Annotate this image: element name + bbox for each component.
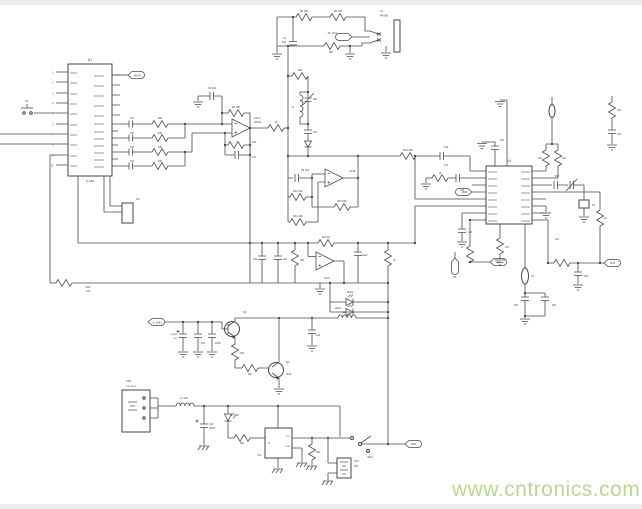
- rf-ic-u4: [415, 100, 549, 324]
- battery-cn3: [337, 458, 351, 478]
- component-label: S1: [25, 99, 29, 103]
- component-label: 1: [52, 72, 54, 75]
- component-label: 473: [444, 164, 449, 167]
- component-label: C9 104: [301, 169, 310, 172]
- filter-stage: [50, 240, 415, 445]
- component-label: 100uF: [209, 428, 216, 430]
- component-label: 16V: [173, 338, 177, 340]
- schematic-page: U1P-049MUTES1NC12345678910R2210310410410…: [0, 0, 642, 509]
- component-label: 10K: [316, 451, 321, 454]
- component-label: 1K: [439, 172, 442, 175]
- cn1-module: [122, 390, 340, 450]
- led1: [346, 295, 353, 306]
- component-label: OSC MOD: [126, 386, 137, 388]
- component-label: 560: [248, 373, 253, 376]
- component-label: LM324: [254, 122, 262, 124]
- component-label: 103: [86, 290, 91, 293]
- component-label: NC: [136, 197, 140, 201]
- component-label: 104: [617, 133, 622, 136]
- component-label: U2:A: [254, 116, 260, 120]
- component-label: 10K: [538, 157, 543, 160]
- component-label: R18 10K: [403, 149, 413, 152]
- component-label: 103: [283, 258, 288, 261]
- component-label: 104: [253, 258, 258, 261]
- component-label: LED2: [335, 307, 342, 310]
- component-label: 20K: [158, 146, 163, 149]
- mid-signal-bus: [288, 152, 478, 171]
- inductor-l3: [300, 95, 303, 117]
- component-label: U1: [88, 58, 93, 62]
- opamp-u2a: [232, 119, 250, 137]
- component-label: 104: [130, 160, 135, 163]
- net-flag-rf: [452, 258, 459, 275]
- component-label: A_VDD: [153, 321, 162, 325]
- component-label: R8 10K: [300, 10, 309, 13]
- component-label: 4: [52, 103, 54, 106]
- oscillator-tank: [288, 73, 314, 157]
- component-label: 680: [329, 51, 334, 54]
- component-label: CN1: [126, 379, 132, 383]
- component-label: R22: [86, 286, 91, 289]
- component-label: 22P: [552, 305, 557, 307]
- component-label: 6: [52, 124, 54, 127]
- opamp-stage-1: [193, 46, 288, 243]
- component-label: 10: [51, 165, 54, 168]
- component-label: 104: [468, 231, 473, 234]
- component-label: 2K0: [240, 352, 245, 355]
- component-label: 104: [201, 342, 206, 345]
- component-label: 104: [313, 131, 318, 134]
- component-label: C24: [209, 424, 214, 426]
- component-label: R9 10K: [334, 10, 343, 13]
- component-label: BAT: [354, 465, 359, 468]
- component-label: 10UF: [215, 342, 221, 345]
- component-label: 104: [316, 334, 321, 337]
- resonator-x2: [522, 268, 529, 284]
- led-indicators: [330, 283, 388, 316]
- component-label: R11 20K: [293, 215, 303, 218]
- component-label: 1K: [393, 259, 396, 262]
- schematic-canvas: U1P-049MUTES1NC12345678910R2210310410410…: [0, 0, 642, 509]
- component-label: Q2: [286, 360, 290, 364]
- component-label: 20K: [158, 132, 163, 135]
- jack-j1: [370, 20, 400, 58]
- component-label: 20K: [300, 259, 305, 262]
- component-label: AF_OUT: [328, 32, 338, 35]
- component-label: RF: [453, 276, 457, 279]
- component-label: 1K: [604, 217, 607, 220]
- antenna-section: [540, 96, 621, 290]
- component-label: CN3: [354, 461, 359, 463]
- component-label: MOD: [462, 192, 468, 194]
- component-label: LED: [234, 414, 239, 417]
- component-label: R6 10K: [232, 106, 241, 109]
- component-label: 2: [52, 82, 54, 85]
- inductor-l1: [176, 403, 194, 406]
- component-label: 10K: [562, 157, 567, 160]
- component-label: 104: [130, 117, 135, 120]
- component-label: 10K: [617, 109, 622, 112]
- switch-sw1: [351, 437, 354, 440]
- component-label: Q1: [243, 310, 247, 314]
- component-label: U3: [257, 453, 261, 457]
- component-label: C19: [444, 146, 449, 149]
- component-label: R10 10K: [293, 190, 303, 193]
- component-label: 10P: [584, 275, 589, 278]
- component-label: SW1: [367, 455, 373, 459]
- component-label: 3: [52, 93, 54, 96]
- ic-u1: [0, 64, 145, 283]
- component-label: C5 104: [208, 87, 217, 90]
- opamp-u2c: [316, 252, 334, 270]
- component-label: 9014: [286, 373, 292, 376]
- component-label: 30P: [313, 98, 318, 101]
- component-label: 2K0: [252, 141, 257, 144]
- component-label: PHONE: [380, 16, 389, 18]
- component-label: U2:B: [349, 169, 355, 173]
- component-label: 10uF: [362, 254, 368, 257]
- junction-dots: [182, 16, 601, 445]
- component-label: X2: [531, 275, 535, 278]
- component-label: 104: [282, 41, 287, 44]
- power-transistors: [148, 315, 388, 394]
- component-label: X1: [592, 204, 596, 207]
- component-label: 1K: [274, 121, 277, 124]
- component-label: 30P: [555, 175, 560, 178]
- component-label: L1 100: [180, 397, 188, 400]
- opamp-u2b: [325, 169, 343, 187]
- component-label: LED1: [347, 291, 354, 294]
- component-label: 104: [130, 146, 135, 149]
- component-label: 680: [298, 69, 303, 72]
- antenna-stub: [549, 105, 555, 118]
- component-label: R12 62K: [337, 200, 347, 203]
- component-label: 680: [240, 442, 245, 445]
- component-label: ANT: [610, 261, 616, 265]
- component-label: U4: [507, 159, 512, 163]
- component-label: U2:C: [324, 276, 330, 280]
- component-label: L2 100: [343, 311, 351, 314]
- audio-jack-section: [272, 14, 400, 60]
- component-label: 20K: [158, 160, 163, 163]
- component-label: P-049: [86, 179, 94, 183]
- battery-switch-section: [322, 406, 422, 485]
- component-label: AFC: [496, 261, 501, 264]
- component-label: GND: [286, 446, 291, 448]
- pushbutton-s1: [23, 112, 26, 115]
- component-label: 104: [130, 132, 135, 135]
- watermark: www.cntronics.com: [452, 478, 640, 502]
- trimmer-box: [122, 203, 133, 223]
- component-label: 104: [500, 139, 505, 142]
- component-label: 104: [555, 238, 560, 241]
- transistor-q2: [269, 363, 284, 378]
- component-label: 472: [252, 156, 257, 159]
- component-label: 220UF: [170, 334, 177, 336]
- component-label: VDD: [411, 442, 417, 446]
- component-label: 47K: [505, 246, 510, 249]
- component-label: MUTE: [134, 74, 142, 78]
- net-flag-af-out: [336, 34, 353, 41]
- component-label: 22P: [514, 305, 519, 307]
- crystal-x1: [579, 200, 589, 208]
- component-label: R13 1K: [322, 236, 331, 239]
- component-label: L3: [291, 106, 294, 109]
- label-layer: U1P-049MUTES1NC12345678910R2210310410410…: [25, 9, 621, 468]
- component-label: 20K: [158, 117, 163, 120]
- component-label: C7: [283, 37, 287, 40]
- component-label: J1: [380, 9, 383, 13]
